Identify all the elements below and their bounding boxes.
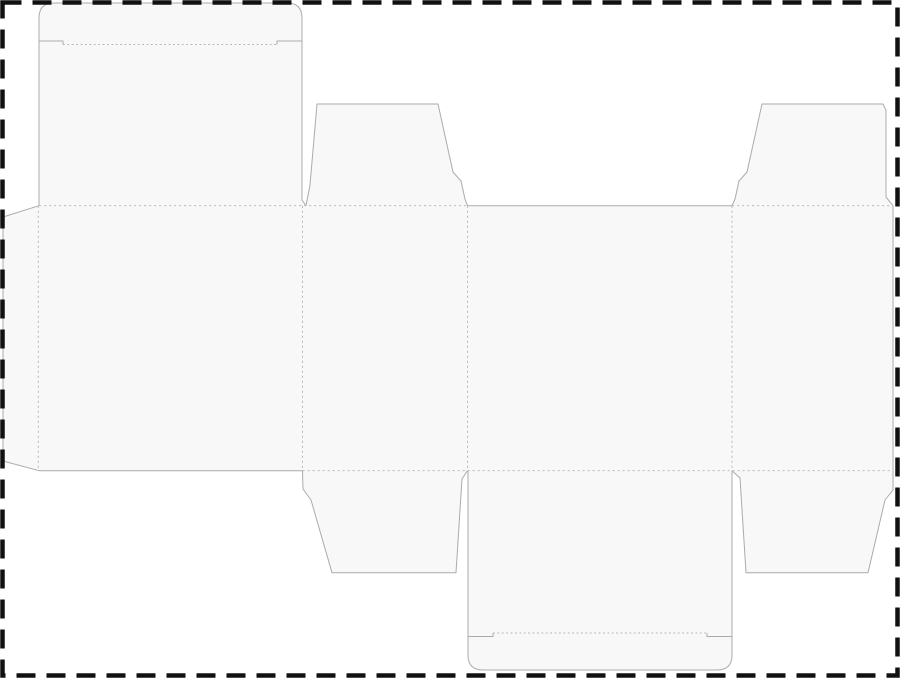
box-dieline-canvas (0, 0, 900, 678)
bottom-lid-fill (468, 471, 732, 670)
top-right-flap-fill (732, 104, 893, 206)
bottom-right-flap-fill (732, 471, 893, 573)
top-mid-flap-fill (306, 104, 468, 206)
dieline-page (0, 0, 900, 678)
main-body-fill (39, 206, 893, 471)
panel-fill-regions (3, 3, 893, 670)
glue-flap-fill (3, 206, 39, 471)
top-lid-fill (39, 3, 306, 206)
